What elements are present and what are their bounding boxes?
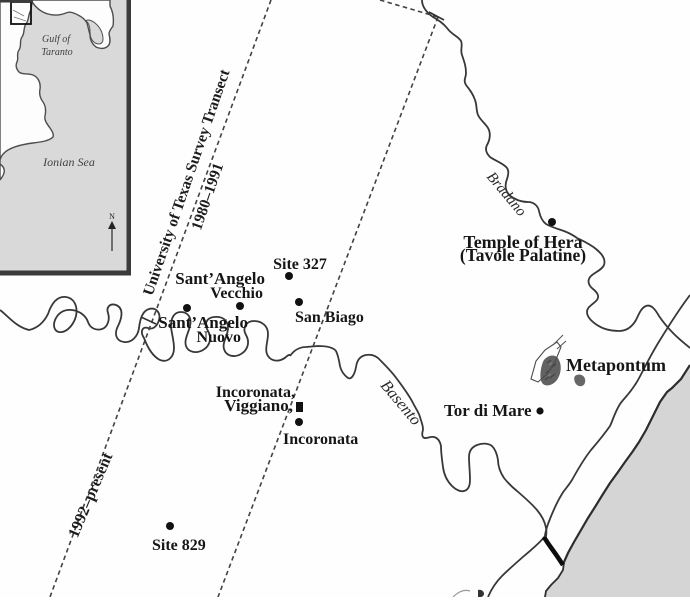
svg-text:Tor di Mare: Tor di Mare <box>444 401 532 420</box>
svg-text:Incoronata: Incoronata <box>283 431 358 448</box>
svg-text:Vecchio: Vecchio <box>210 285 263 302</box>
svg-text:N: N <box>109 212 115 221</box>
svg-text:Taranto: Taranto <box>41 47 72 58</box>
svg-text:Site 327: Site 327 <box>273 256 327 273</box>
svg-text:Viggiano,: Viggiano, <box>224 396 293 415</box>
svg-text:(Tavole Palatine): (Tavole Palatine) <box>460 245 586 265</box>
svg-text:Metapontum: Metapontum <box>566 355 666 375</box>
svg-text:Gulf of: Gulf of <box>42 34 71 45</box>
svg-text:Site 829: Site 829 <box>152 537 206 554</box>
svg-text:Ionian Sea: Ionian Sea <box>42 155 95 169</box>
svg-text:San Biago: San Biago <box>295 309 364 326</box>
svg-text:Nuovo: Nuovo <box>197 329 241 346</box>
